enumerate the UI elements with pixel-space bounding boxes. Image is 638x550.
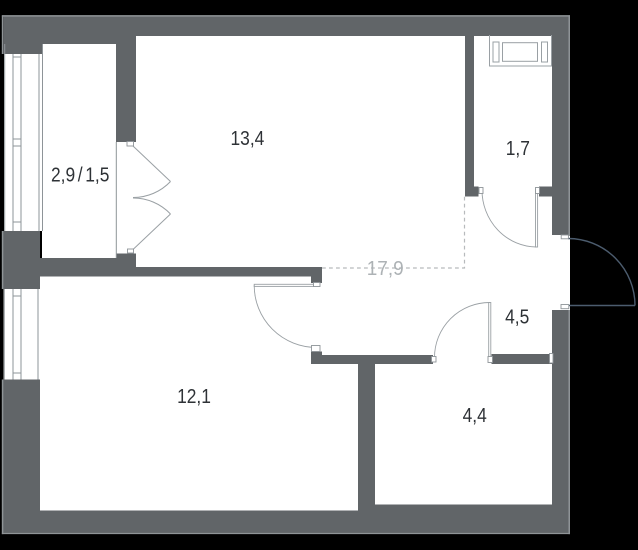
- svg-text:12,1: 12,1: [177, 385, 211, 407]
- svg-text:13,4: 13,4: [230, 127, 264, 149]
- svg-text:4,5: 4,5: [505, 305, 529, 327]
- svg-text:1,7: 1,7: [506, 137, 530, 159]
- svg-text:17,9: 17,9: [367, 257, 404, 280]
- svg-text:2,9/1,5: 2,9/1,5: [51, 164, 109, 186]
- svg-text:4,4: 4,4: [463, 404, 487, 426]
